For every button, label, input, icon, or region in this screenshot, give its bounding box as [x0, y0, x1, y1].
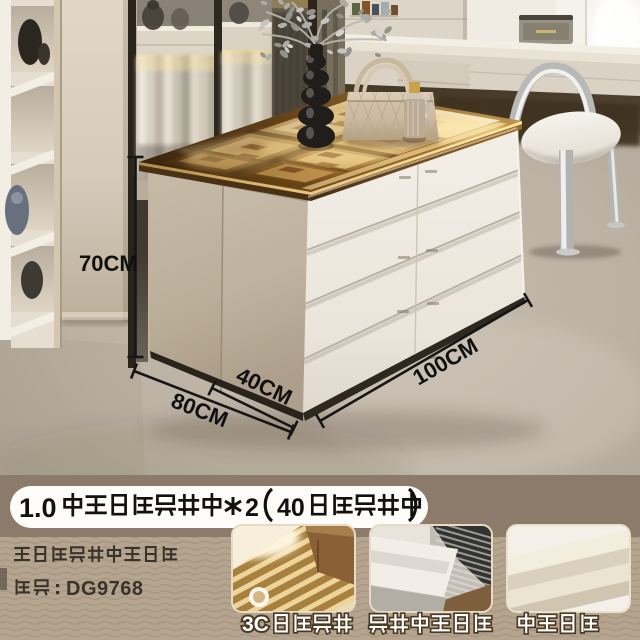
- svg-text:2: 2: [245, 494, 259, 522]
- svg-text:DG9768: DG9768: [66, 578, 144, 600]
- svg-text:1.0: 1.0: [19, 493, 57, 523]
- svg-text:40: 40: [277, 494, 305, 522]
- svg-text:3C: 3C: [242, 613, 269, 636]
- svg-text:70CM: 70CM: [79, 251, 138, 276]
